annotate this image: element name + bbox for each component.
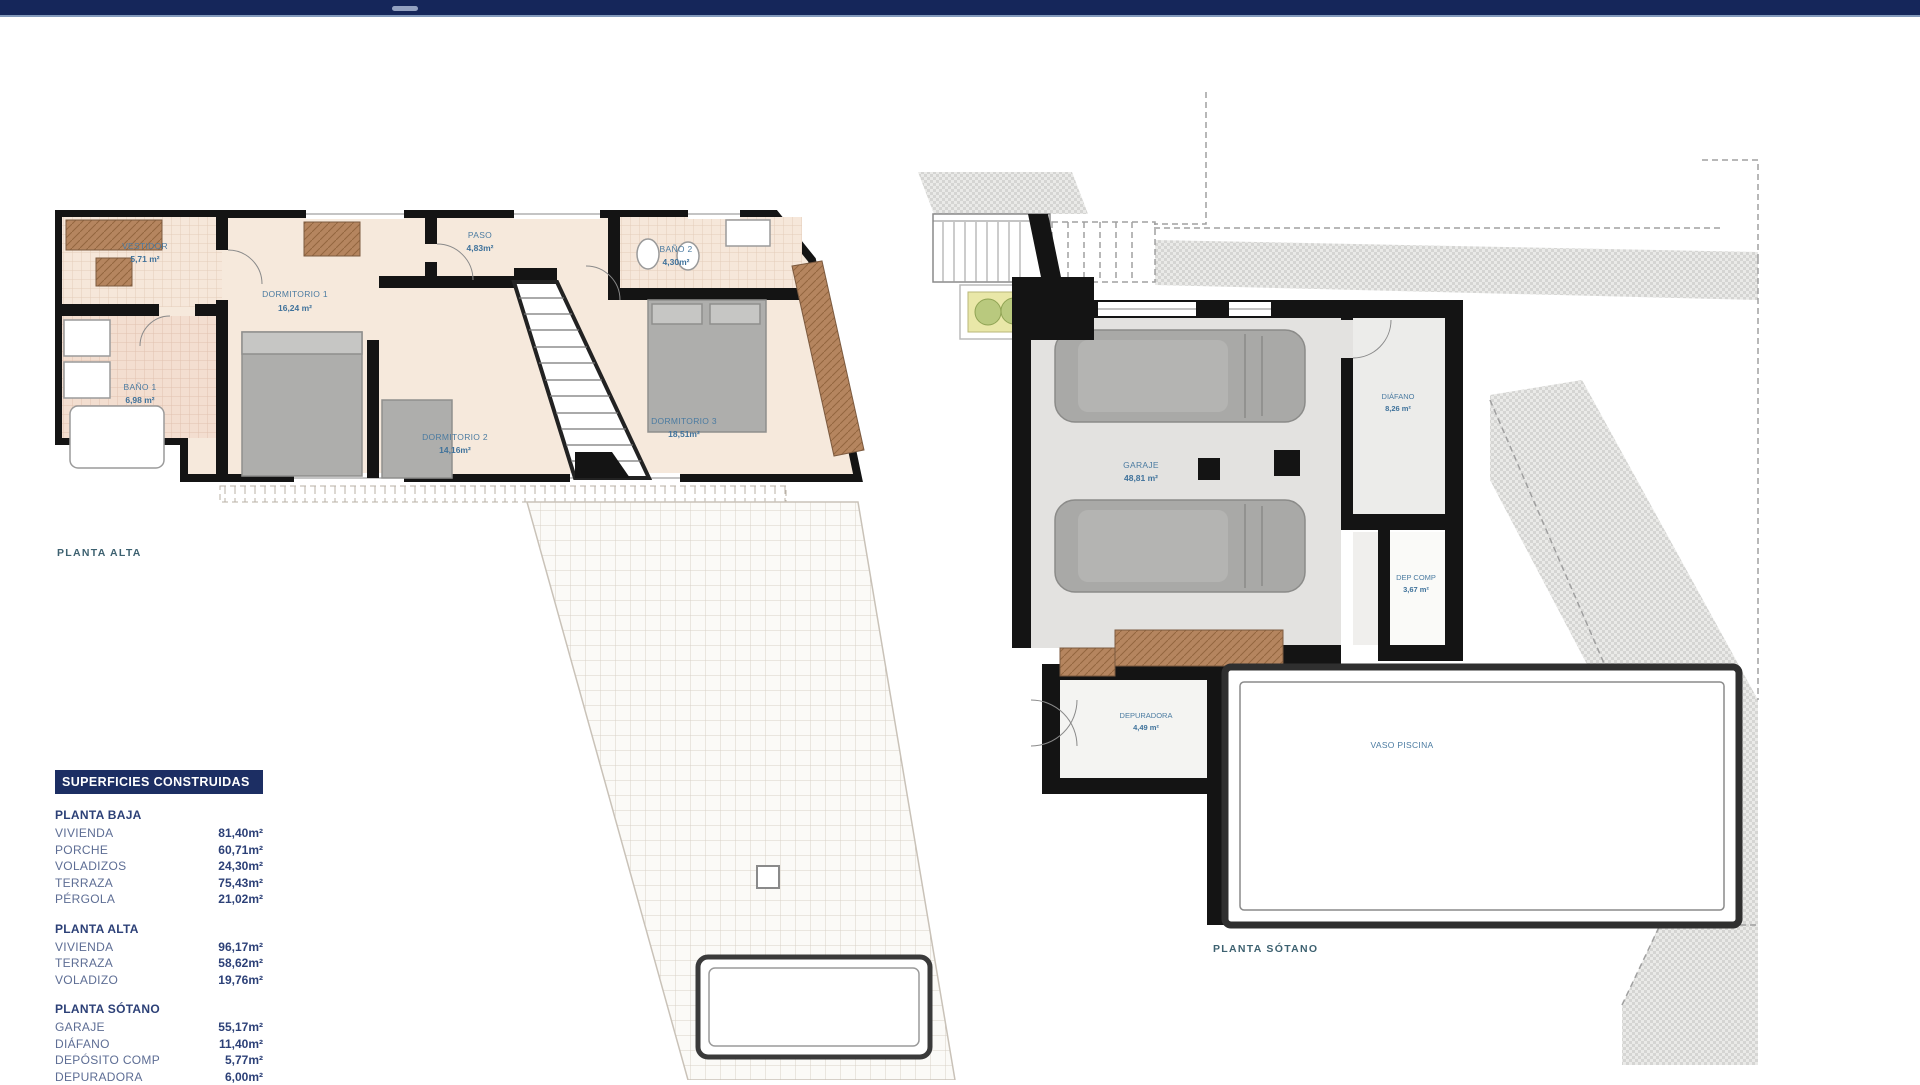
legend-value: 81,40m²: [218, 825, 263, 842]
room-area-diafano: 8,26 m²: [1385, 404, 1411, 413]
room-label-bano2: BAÑO 2: [660, 244, 693, 254]
pillar: [1198, 458, 1220, 480]
room-area-garaje: 48,81 m²: [1124, 473, 1158, 483]
car-1: [1055, 330, 1305, 422]
legend-value: 19,76m²: [218, 972, 263, 989]
legend-section-planta-alta: PLANTA ALTA VIVIENDA96,17m² TERRAZA58,62…: [55, 922, 263, 989]
room-area-depuradora: 4,49 m²: [1133, 723, 1159, 732]
legend-label: PÉRGOLA: [55, 891, 115, 908]
room-label-paso: PASO: [468, 230, 492, 240]
caption-planta-sotano: PLANTA SÓTANO: [1213, 942, 1318, 955]
legend-title: SUPERFICIES CONSTRUIDAS: [55, 770, 263, 794]
legend-label: GARAJE: [55, 1019, 105, 1036]
legend-label: PORCHE: [55, 842, 108, 859]
room-area-dormitorio3: 18,51m²: [668, 429, 700, 439]
bed-dormitorio1: [242, 332, 362, 476]
room-label-dep-comp: DEP COMP: [1396, 573, 1436, 582]
legend-label: VOLADIZO: [55, 972, 118, 989]
terrace-edge-strip: [220, 486, 786, 502]
room-area-vestidor: 5,71 m²: [130, 254, 159, 264]
legend-value: 6,00m²: [225, 1069, 263, 1085]
legend-label: VIVIENDA: [55, 939, 113, 956]
legend-label: TERRAZA: [55, 875, 113, 892]
legend-value: 96,17m²: [218, 939, 263, 956]
legend-row: GARAJE55,17m²: [55, 1019, 263, 1036]
room-area-dep-comp: 3,67 m²: [1403, 585, 1429, 594]
legend-row: TERRAZA75,43m²: [55, 875, 263, 892]
legend-row: VOLADIZO19,76m²: [55, 972, 263, 989]
room-label-depuradora: DEPURADORA: [1120, 711, 1173, 720]
legend-label: DIÁFANO: [55, 1036, 110, 1053]
terrace-drain: [757, 866, 779, 888]
legend-label: DEPÓSITO COMP: [55, 1052, 160, 1069]
floorplan-canvas: VESTIDOR 5,71 m² PASO 4,83m² BAÑO 2 4,30…: [0, 0, 1920, 1080]
basement-pool: [1225, 667, 1739, 925]
legend-value: 11,40m²: [219, 1036, 263, 1053]
legend-heading: PLANTA SÓTANO: [55, 1002, 263, 1016]
legend-label: TERRAZA: [55, 955, 113, 972]
terrace-pool: [698, 957, 930, 1057]
legend-row: TERRAZA58,62m²: [55, 955, 263, 972]
legend-row: PÉRGOLA21,02m²: [55, 891, 263, 908]
legend-row: DIÁFANO11,40m²: [55, 1036, 263, 1053]
legend-label: DEPURADORA: [55, 1069, 143, 1085]
room-area-paso: 4,83m²: [467, 243, 494, 253]
legend-row: DEPÓSITO COMP5,77m²: [55, 1052, 263, 1069]
room-area-dormitorio1: 16,24 m²: [278, 303, 312, 313]
room-label-dormitorio1: DORMITORIO 1: [262, 289, 328, 299]
room-label-vaso-piscina: VASO PISCINA: [1371, 740, 1434, 750]
room-label-vestidor: VESTIDOR: [122, 241, 168, 251]
room-label-dormitorio3: DORMITORIO 3: [651, 416, 717, 426]
legend-heading: PLANTA BAJA: [55, 808, 263, 822]
legend-heading: PLANTA ALTA: [55, 922, 263, 936]
legend-row: DEPURADORA6,00m²: [55, 1069, 263, 1085]
bed-dormitorio3: [648, 300, 766, 432]
legend-value: 24,30m²: [218, 858, 263, 875]
room-area-bano1: 6,98 m²: [125, 395, 154, 405]
surface-legend: SUPERFICIES CONSTRUIDAS PLANTA BAJA VIVI…: [55, 770, 263, 1085]
legend-section-planta-sotano: PLANTA SÓTANO GARAJE55,17m² DIÁFANO11,40…: [55, 1002, 263, 1085]
legend-section-planta-baja: PLANTA BAJA VIVIENDA81,40m² PORCHE60,71m…: [55, 808, 263, 908]
room-label-diafano: DIÁFANO: [1382, 392, 1415, 401]
car-2: [1055, 500, 1305, 592]
legend-label: VIVIENDA: [55, 825, 113, 842]
exterior-stair: [933, 214, 1062, 282]
room-area-bano2: 4,30m²: [663, 257, 690, 267]
legend-value: 75,43m²: [218, 875, 263, 892]
room-label-garaje: GARAJE: [1123, 460, 1159, 470]
legend-label: VOLADIZOS: [55, 858, 126, 875]
legend-value: 21,02m²: [218, 891, 263, 908]
legend-row: VOLADIZOS24,30m²: [55, 858, 263, 875]
legend-value: 5,77m²: [225, 1052, 263, 1069]
legend-row: VIVIENDA96,17m²: [55, 939, 263, 956]
room-label-dormitorio2: DORMITORIO 2: [422, 432, 488, 442]
room-area-dormitorio2: 14,16m²: [439, 445, 471, 455]
caption-planta-alta: PLANTA ALTA: [57, 547, 142, 559]
room-label-bano1: BAÑO 1: [124, 382, 157, 392]
legend-row: PORCHE60,71m²: [55, 842, 263, 859]
legend-value: 55,17m²: [218, 1019, 263, 1036]
legend-value: 58,62m²: [218, 955, 263, 972]
legend-row: VIVIENDA81,40m²: [55, 825, 263, 842]
pillar: [1274, 450, 1300, 476]
legend-value: 60,71m²: [218, 842, 263, 859]
planta-sotano-plan: GARAJE 48,81 m² DIÁFANO 8,26 m² DEP COMP…: [918, 92, 1758, 1065]
